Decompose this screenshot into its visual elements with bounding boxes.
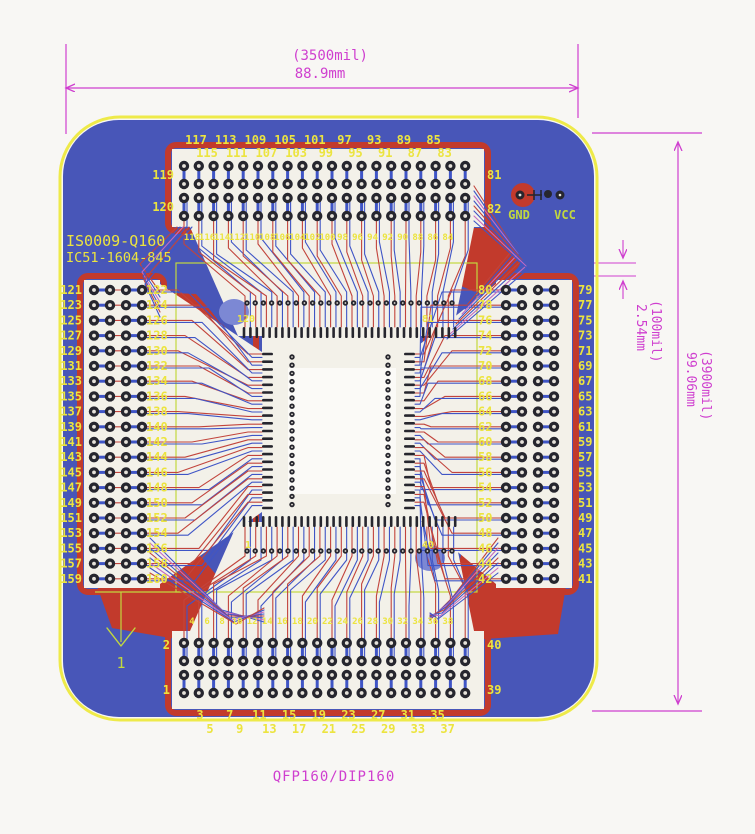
via-pad-hole — [361, 550, 363, 552]
dip-pad-hole — [520, 486, 524, 490]
dip-pad-hole — [140, 364, 144, 368]
dip-pad-hole — [124, 547, 128, 551]
pin-number-label: 113 — [215, 133, 237, 147]
pin-number-label: 36 — [427, 617, 438, 627]
dip-pad-hole — [197, 182, 201, 186]
dip-pad-hole — [108, 288, 112, 292]
via-pad-hole — [387, 414, 389, 416]
qfp-pad — [352, 516, 355, 527]
qfp-pad — [262, 468, 273, 471]
dip-pad-hole — [92, 349, 96, 353]
pin-number-label: 108 — [259, 233, 275, 243]
dip-pad-hole — [315, 164, 319, 168]
dip-pad-hole — [182, 641, 186, 645]
dip-pad-hole — [286, 164, 290, 168]
dip-pad-hole — [108, 471, 112, 475]
qfp-pad — [268, 327, 271, 338]
pin-number-label: 50 — [478, 511, 492, 525]
dip-pad-hole — [330, 196, 334, 200]
dip-pad-hole — [140, 501, 144, 505]
qfp-pad — [262, 422, 273, 425]
via-pad-hole — [394, 550, 396, 552]
dip-pad-hole — [271, 641, 275, 645]
pin-number-label: 97 — [337, 133, 351, 147]
qfp-pad — [404, 384, 415, 387]
dip-pad-hole — [92, 471, 96, 475]
pin-number-label: 62 — [478, 420, 492, 434]
dip-pad-hole — [140, 319, 144, 323]
dip-pad-hole — [124, 425, 128, 429]
dip-pad-hole — [212, 182, 216, 186]
via-pad-hole — [387, 479, 389, 481]
pad-zone-right — [496, 280, 572, 588]
dip-pad-hole — [92, 425, 96, 429]
dip-pad-hole — [124, 562, 128, 566]
qfp-pad — [404, 445, 415, 448]
dip-pad-hole — [271, 673, 275, 677]
via-pad-hole — [291, 446, 293, 448]
dip-pad-hole — [449, 673, 453, 677]
dip-pad-hole — [504, 364, 508, 368]
qfp-pad — [307, 327, 310, 338]
qfp-pad — [275, 327, 278, 338]
qfp-pad — [262, 516, 265, 527]
dip-pad-hole — [345, 214, 349, 218]
pin-number-label: 91 — [378, 146, 392, 160]
qfp-pad — [320, 516, 323, 527]
via-pad-hole — [410, 302, 412, 304]
via-pad-hole — [387, 373, 389, 375]
dip-pad-hole — [315, 641, 319, 645]
dip-pad-hole — [536, 455, 540, 459]
pin-number-label: 80 — [478, 283, 492, 297]
pin-number-label: 159 — [60, 572, 82, 586]
dip-pad-hole — [108, 440, 112, 444]
pin-number-label: 49 — [578, 511, 592, 525]
dip-pad-hole — [404, 691, 408, 695]
dip-pad-hole — [504, 455, 508, 459]
dip-pad-hole — [552, 364, 556, 368]
dip-pad-hole — [197, 214, 201, 218]
dip-pad-hole — [504, 349, 508, 353]
dip-pad-hole — [108, 334, 112, 338]
dip-pad-hole — [504, 334, 508, 338]
pin-number-label: 107 — [256, 146, 278, 160]
via-pad-hole — [291, 496, 293, 498]
pin-number-label: 30 — [382, 617, 393, 627]
pin-number-label: 131 — [60, 359, 82, 373]
dip-pad-hole — [140, 440, 144, 444]
dip-pad-hole — [449, 641, 453, 645]
qfp-pad — [371, 327, 374, 338]
pin-number-label: 45 — [578, 541, 592, 555]
qfp-pad — [262, 507, 273, 510]
dip-pad-hole — [124, 395, 128, 399]
dip-pad-hole — [463, 673, 467, 677]
via-pad-hole — [418, 550, 420, 552]
dip-pad-hole — [449, 196, 453, 200]
via-pad-hole — [279, 302, 281, 304]
pin-number-label: 106 — [274, 233, 290, 243]
pin-number-label: 137 — [60, 405, 82, 419]
dip-pad-hole — [241, 691, 245, 695]
via-pad-hole — [353, 550, 355, 552]
dip-pad-hole — [389, 182, 393, 186]
pin-number-label: 25 — [351, 722, 365, 736]
dip-pad-hole — [212, 641, 216, 645]
dip-pad-hole — [227, 673, 231, 677]
via-pad-hole — [345, 550, 347, 552]
dip-pad-hole — [504, 379, 508, 383]
dip-pad-hole — [271, 214, 275, 218]
dip-pad-hole — [92, 501, 96, 505]
dip-pad-hole — [124, 471, 128, 475]
dip-pad-hole — [536, 471, 540, 475]
pin-number-label: 82 — [487, 202, 501, 216]
dip-pad-hole — [256, 659, 260, 663]
qfp-corner-label: 40 — [422, 540, 434, 551]
dip-pad-hole — [301, 641, 305, 645]
qfp-pad — [404, 491, 415, 494]
dip-pad-hole — [197, 673, 201, 677]
pin-number-label: 42 — [478, 572, 492, 586]
qfp-pad — [403, 327, 406, 338]
dip-pad-hole — [434, 196, 438, 200]
pin-number-label: 53 — [578, 481, 592, 495]
via-pad-hole — [427, 302, 429, 304]
dip-pad-hole — [375, 659, 379, 663]
pin-number-label: 1 — [163, 683, 170, 697]
dip-pad-hole — [360, 659, 364, 663]
dip-pad-hole — [389, 641, 393, 645]
pin-number-label: 157 — [60, 557, 82, 571]
dip-pad-hole — [315, 196, 319, 200]
via-pad-hole — [336, 550, 338, 552]
dip-pad-hole — [301, 673, 305, 677]
dip-pad-hole — [552, 486, 556, 490]
via-pad-hole — [443, 550, 445, 552]
pin-number-label: 125 — [60, 313, 82, 327]
dip-pad-hole — [419, 182, 423, 186]
qfp-pad — [294, 516, 297, 527]
dip-pad-hole — [227, 691, 231, 695]
dip-pad-hole — [256, 214, 260, 218]
qfp-pad — [288, 327, 291, 338]
dip-pad-hole — [108, 410, 112, 414]
qfp-pad — [326, 516, 329, 527]
dip-pad-hole — [504, 577, 508, 581]
dip-pad-hole — [345, 691, 349, 695]
dip-pad-hole — [124, 379, 128, 383]
via-pad-hole — [386, 550, 388, 552]
pin-number-label: 70 — [478, 359, 492, 373]
pin-number-label: 59 — [578, 435, 592, 449]
pin-number-label: 136 — [146, 389, 168, 403]
via-pad-hole — [263, 302, 265, 304]
pin-number-label: 140 — [146, 420, 168, 434]
pin-number-label: 100 — [319, 233, 335, 243]
dip-pad-hole — [536, 547, 540, 551]
dip-pad-hole — [389, 659, 393, 663]
qfp-pad — [320, 327, 323, 338]
dip-pad-hole — [404, 182, 408, 186]
dip-pad-hole — [286, 214, 290, 218]
dip-pad-hole — [108, 379, 112, 383]
via-pad-hole — [295, 550, 297, 552]
pin-number-label: 130 — [146, 344, 168, 358]
dip-pad-hole — [449, 659, 453, 663]
dip-pad-hole — [520, 455, 524, 459]
pin-number-label: 31 — [401, 708, 415, 722]
dip-pad-hole — [552, 562, 556, 566]
via-pad-hole — [336, 302, 338, 304]
qfp-pad — [384, 327, 387, 338]
pin-number-label: 78 — [478, 298, 492, 312]
dip-pad-hole — [449, 214, 453, 218]
socket-id-label: IC51-1604-845 — [66, 250, 172, 266]
pin-number-label: 85 — [426, 133, 440, 147]
qfp-pad — [262, 484, 273, 487]
qfp-pad — [262, 353, 273, 356]
dip-pad-hole — [241, 182, 245, 186]
dip-pad-hole — [463, 164, 467, 168]
pin-number-label: 129 — [60, 344, 82, 358]
dip-pad-hole — [92, 516, 96, 520]
pin-number-label: 6 — [204, 617, 209, 627]
via-pad-hole — [361, 302, 363, 304]
dip-pad-hole — [520, 531, 524, 535]
pin-number-label: 152 — [146, 511, 168, 525]
dip-pad-hole — [552, 319, 556, 323]
pin-number-label: 12 — [247, 617, 258, 627]
qfp-pad — [262, 491, 273, 494]
dip-pad-hole — [536, 303, 540, 307]
pin-number-label: 68 — [478, 374, 492, 388]
pin-number-label: 122 — [146, 283, 168, 297]
dip-pad-hole — [404, 659, 408, 663]
dip-pad-hole — [552, 501, 556, 505]
dip-pad-hole — [345, 196, 349, 200]
dip-pad-hole — [345, 641, 349, 645]
dip-pad-hole — [140, 425, 144, 429]
pin-number-label: 153 — [60, 526, 82, 540]
via-pad-hole — [328, 302, 330, 304]
dip-pad-hole — [271, 164, 275, 168]
qfp-pad — [441, 516, 444, 527]
pin-number-label: 138 — [146, 405, 168, 419]
qfp-pad — [416, 327, 419, 338]
dip-pad-hole — [552, 288, 556, 292]
dip-pad-hole — [108, 425, 112, 429]
dip-pad-hole — [536, 516, 540, 520]
qfp-pad — [422, 327, 425, 338]
dip-pad-hole — [271, 196, 275, 200]
dip-pad-hole — [449, 164, 453, 168]
dip-pad-hole — [241, 196, 245, 200]
dip-pad-hole — [330, 691, 334, 695]
qfp-pad — [262, 414, 273, 417]
pin-number-label: 69 — [578, 359, 592, 373]
via-pad-hole — [387, 438, 389, 440]
via-pad-hole — [279, 550, 281, 552]
qfp-pad — [404, 476, 415, 479]
qfp-pad — [404, 453, 415, 456]
dip-pad-hole — [108, 562, 112, 566]
dip-pad-hole — [536, 395, 540, 399]
pin-number-label: 146 — [146, 465, 168, 479]
pin-number-label: 60 — [478, 435, 492, 449]
dimension-height-mm: 99.06mm — [683, 352, 698, 407]
qfp-pad — [435, 516, 438, 527]
pin-number-label: 111 — [226, 146, 248, 160]
dip-pad-hole — [330, 641, 334, 645]
pin1-label: 1 — [116, 654, 125, 672]
pin-number-label: 102 — [304, 233, 320, 243]
via-pad-hole — [271, 302, 273, 304]
dimension-pitch-mil: (100mil) — [648, 300, 663, 363]
dip-pad-hole — [375, 673, 379, 677]
dip-pad-hole — [182, 196, 186, 200]
dip-pad-hole — [212, 673, 216, 677]
dip-pad-hole — [345, 659, 349, 663]
dip-pad-hole — [330, 164, 334, 168]
via-pad-hole — [271, 550, 273, 552]
dip-pad-hole — [463, 214, 467, 218]
dip-pad-hole — [520, 349, 524, 353]
via-pad-hole — [377, 302, 379, 304]
dip-pad-hole — [520, 288, 524, 292]
qfp-pad — [313, 327, 316, 338]
qfp-pad — [435, 327, 438, 338]
dip-pad-hole — [504, 471, 508, 475]
dip-pad-hole — [360, 164, 364, 168]
dip-pad-hole — [286, 691, 290, 695]
dip-pad-hole — [301, 691, 305, 695]
dip-pad-hole — [108, 577, 112, 581]
qfp-pad — [262, 360, 273, 363]
dip-pad-hole — [212, 214, 216, 218]
via-pad-hole — [387, 422, 389, 424]
via-pad-hole — [387, 463, 389, 465]
pin-number-label: 28 — [367, 617, 378, 627]
pin-number-label: 27 — [371, 708, 385, 722]
pin-number-label: 48 — [478, 526, 492, 540]
qfp-pad — [404, 353, 415, 356]
dip-pad-hole — [92, 334, 96, 338]
dip-pad-hole — [124, 319, 128, 323]
qfp-pad — [275, 516, 278, 527]
dip-pad-hole — [552, 379, 556, 383]
dip-pad-hole — [315, 659, 319, 663]
dip-pad-hole — [404, 164, 408, 168]
drawing-title: QFP160/DIP160 — [273, 769, 396, 785]
dip-pad-hole — [92, 410, 96, 414]
pin-number-label: 84 — [442, 233, 453, 243]
via-pad-hole — [291, 356, 293, 358]
qfp-pad — [404, 437, 415, 440]
pin-number-label: 18 — [292, 617, 303, 627]
qfp-pad — [345, 516, 348, 527]
dip-pad-hole — [434, 659, 438, 663]
via-pad-hole — [451, 302, 453, 304]
pin-number-label: 41 — [578, 572, 592, 586]
via-pad-hole — [435, 550, 437, 552]
gnd-label: GND — [508, 208, 530, 222]
pin-number-label: 14 — [262, 617, 273, 627]
dip-pad-hole — [92, 486, 96, 490]
dip-pad-hole — [520, 303, 524, 307]
pin-number-label: 117 — [185, 133, 207, 147]
dip-pad-hole — [520, 379, 524, 383]
dip-pad-hole — [140, 486, 144, 490]
dip-pad-hole — [124, 516, 128, 520]
dip-pad-hole — [241, 214, 245, 218]
pin-number-label: 81 — [487, 168, 501, 182]
dip-pad-hole — [256, 164, 260, 168]
dip-pad-hole — [140, 547, 144, 551]
via-pad-hole — [435, 302, 437, 304]
dip-pad-hole — [536, 410, 540, 414]
dip-pad-hole — [241, 673, 245, 677]
dip-pad-hole — [434, 691, 438, 695]
pin-number-label: 52 — [478, 496, 492, 510]
pin-number-label: 142 — [146, 435, 168, 449]
pin-number-label: 119 — [152, 168, 174, 182]
dip-pad-hole — [301, 196, 305, 200]
qfp-pad — [262, 384, 273, 387]
pin-number-label: 55 — [578, 465, 592, 479]
dip-pad-hole — [92, 440, 96, 444]
via-pad-hole — [291, 405, 293, 407]
dip-pad-hole — [419, 641, 423, 645]
qfp-pad — [396, 516, 399, 527]
pin-number-label: 22 — [322, 617, 333, 627]
pin-number-label: 58 — [478, 450, 492, 464]
dip-pad-hole — [552, 516, 556, 520]
dip-pad-hole — [419, 673, 423, 677]
dip-pad-hole — [375, 182, 379, 186]
dip-pad-hole — [301, 659, 305, 663]
qfp-corner-label: 120 — [237, 314, 255, 325]
via-pad-hole — [291, 364, 293, 366]
dip-pad-hole — [375, 164, 379, 168]
dip-pad-hole — [520, 562, 524, 566]
qfp-corner-label: 81 — [422, 314, 434, 325]
dip-pad-hole — [182, 164, 186, 168]
dip-pad-hole — [140, 303, 144, 307]
dip-pad-hole — [504, 319, 508, 323]
pin-number-label: 83 — [437, 146, 451, 160]
via-pad-hole — [254, 550, 256, 552]
dip-pad-hole — [389, 214, 393, 218]
pin-number-label: 4 — [189, 617, 195, 627]
dip-pad-hole — [536, 440, 540, 444]
pin-number-label: 57 — [578, 450, 592, 464]
via-pad-hole — [387, 397, 389, 399]
qfp-pad — [358, 516, 361, 527]
dip-pad-hole — [212, 164, 216, 168]
pin-number-label: 38 — [442, 617, 453, 627]
dip-pad-hole — [404, 214, 408, 218]
vcc-label: VCC — [554, 208, 576, 222]
pin-number-label: 139 — [60, 420, 82, 434]
pin-number-label: 143 — [60, 450, 82, 464]
qfp-pad — [404, 391, 415, 394]
pin-number-label: 77 — [578, 298, 592, 312]
dip-pad-hole — [345, 182, 349, 186]
qfp-pad — [409, 327, 412, 338]
via-pad-hole — [287, 302, 289, 304]
